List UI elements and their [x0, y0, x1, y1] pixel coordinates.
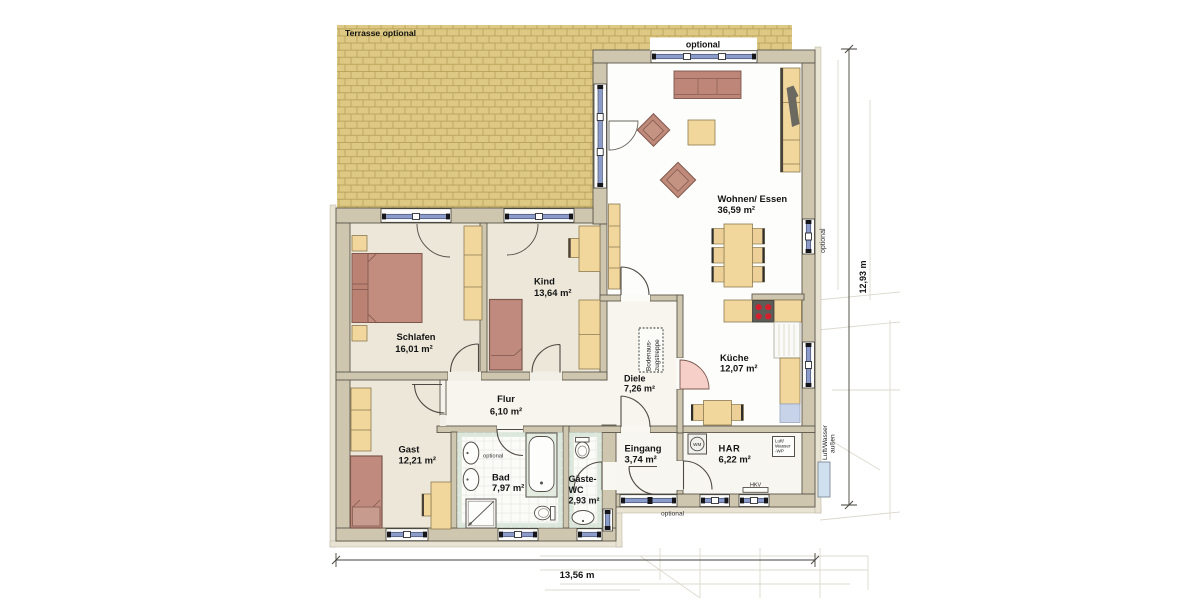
- svg-text:16,01 m²: 16,01 m²: [395, 343, 433, 354]
- svg-text:12,07 m²: 12,07 m²: [720, 363, 758, 374]
- svg-text:zugstreppe: zugstreppe: [654, 339, 661, 371]
- svg-text:Terrasse optional: Terrasse optional: [345, 28, 416, 38]
- svg-text:Flur: Flur: [497, 393, 515, 404]
- svg-text:Eingang: Eingang: [625, 443, 662, 454]
- svg-text:optional: optional: [820, 228, 827, 253]
- svg-text:7,97 m²: 7,97 m²: [492, 482, 524, 493]
- svg-text:optional: optional: [686, 40, 720, 50]
- svg-text:13,56 m: 13,56 m: [560, 570, 595, 581]
- svg-text:-WP: -WP: [775, 449, 784, 454]
- svg-text:Schlafen: Schlafen: [396, 331, 435, 342]
- svg-text:außen: außen: [830, 434, 837, 453]
- svg-text:Luft/Wasser: Luft/Wasser: [822, 424, 829, 460]
- svg-text:6,10 m²: 6,10 m²: [490, 406, 522, 417]
- svg-text:2,93 m²: 2,93 m²: [569, 496, 600, 506]
- svg-text:12,93 m: 12,93 m: [858, 260, 868, 293]
- svg-text:HAR: HAR: [719, 443, 741, 454]
- svg-text:WM: WM: [693, 442, 701, 447]
- svg-text:3,74 m²: 3,74 m²: [625, 454, 657, 465]
- svg-text:Wohnen/ Essen: Wohnen/ Essen: [718, 193, 788, 204]
- svg-text:Gäste-: Gäste-: [569, 474, 597, 484]
- svg-text:Bodenaus-: Bodenaus-: [646, 340, 653, 371]
- svg-text:Küche: Küche: [720, 352, 749, 363]
- svg-text:Diele: Diele: [624, 374, 646, 384]
- svg-text:12,21 m²: 12,21 m²: [399, 455, 437, 466]
- svg-text:36,59 m²: 36,59 m²: [718, 204, 756, 215]
- svg-text:13,64 m²: 13,64 m²: [534, 287, 572, 298]
- svg-text:7,26 m²: 7,26 m²: [624, 384, 655, 394]
- svg-text:HKV: HKV: [750, 483, 761, 489]
- svg-text:6,22 m²: 6,22 m²: [719, 454, 751, 465]
- svg-text:optional: optional: [661, 511, 685, 518]
- svg-text:Bad: Bad: [492, 472, 510, 483]
- svg-text:optional: optional: [483, 454, 503, 460]
- svg-text:Gast: Gast: [399, 444, 420, 455]
- svg-text:Kind: Kind: [534, 276, 555, 287]
- svg-text:WC: WC: [569, 485, 584, 495]
